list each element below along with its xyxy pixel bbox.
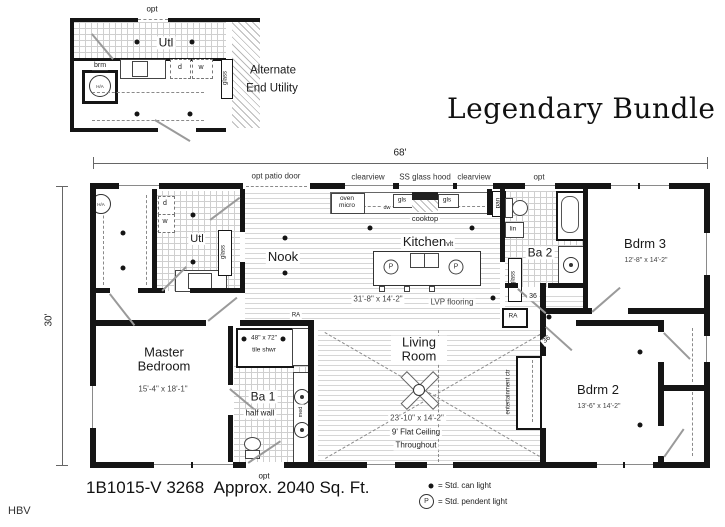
entertainment-center — [516, 356, 542, 430]
linen-label: lin — [510, 225, 517, 232]
opt-patio-door-label: opt patio door — [252, 173, 301, 182]
bdrm3-label: Bdrm 3 — [624, 237, 666, 251]
range-hood — [412, 192, 438, 200]
great-area-dim: 31'-8" x 14'-2" — [351, 296, 404, 305]
can-light — [283, 271, 288, 276]
floor-plan-sheet: Legendary Bundle H/A opt — [0, 0, 725, 527]
utility-glass-label: glass — [221, 245, 228, 259]
master-dim: 15'-4" x 18'-1" — [138, 386, 187, 395]
inset-utl-label: Utl — [157, 36, 176, 49]
living-label: Living Room — [391, 336, 447, 365]
inset-opt-door — [138, 19, 168, 20]
can-light — [470, 226, 475, 231]
can-light — [188, 112, 193, 117]
island-sink-left — [410, 253, 425, 268]
nook-label: Nook — [266, 250, 300, 264]
ss-glass-hood-label: SS glass hood — [399, 174, 451, 183]
bdrm3-door — [592, 287, 621, 312]
pendant-light: P — [384, 260, 399, 275]
shower-type-label: tile shwr — [250, 346, 278, 353]
depth-dimension-line — [62, 186, 63, 466]
closet-top-door — [663, 332, 690, 359]
pendant-light: P — [449, 260, 464, 275]
cooktop-label: cooktop — [410, 215, 440, 223]
width-dimension: 68' — [391, 148, 408, 159]
exterior-wall-right — [704, 183, 710, 468]
ba2-toilet — [512, 200, 528, 216]
sqft: Approx. 2040 Sq. Ft. — [214, 478, 370, 497]
ra-left-label: RA — [290, 313, 302, 320]
can-light-icon — [429, 484, 434, 489]
pantry-label: pan — [494, 198, 501, 209]
window-bdrm2 — [596, 462, 654, 468]
inset-glass-label: glass — [223, 71, 230, 85]
legend-pendant-label: = Std. pendent light — [438, 497, 507, 506]
kitchen-glass-label: glass — [511, 271, 518, 285]
ba1-label: Ba 1 — [249, 390, 278, 403]
bdrm2-dim: 13'-6" x 14'-2" — [577, 403, 620, 411]
can-light — [638, 350, 643, 355]
medicine-cabinet-label: med — [298, 405, 304, 420]
can-light — [368, 226, 373, 231]
can-light — [281, 337, 286, 342]
can-light — [191, 213, 196, 218]
utility-label: Utl — [188, 233, 205, 245]
inset-caption-line2: End Utility — [246, 83, 298, 96]
window-living-2 — [426, 462, 454, 468]
ba1-toilet — [244, 437, 261, 451]
half-wall-label: half wall — [244, 410, 277, 419]
entertainment-ctr-label: entertainment ctr — [506, 369, 513, 414]
bdrm3-dim: 12'-8" x 14'-2" — [624, 257, 667, 265]
model-number: 1B1015-V 3268 — [86, 478, 204, 497]
can-light — [121, 266, 126, 271]
inset-brm-label: brm — [92, 62, 108, 70]
can-light — [135, 112, 140, 117]
can-light — [190, 40, 195, 45]
can-light — [283, 236, 288, 241]
kitchen-label: Kitchenvlt — [401, 235, 455, 249]
opt-rear-door — [246, 462, 284, 468]
window-clearview-left — [344, 183, 394, 189]
window-closet-side — [704, 335, 710, 363]
can-light — [191, 260, 196, 265]
ba2-door-width: 36 — [527, 293, 539, 301]
ba2-sink — [563, 257, 579, 273]
page-title: Legendary Bundle — [447, 92, 716, 125]
hall-opening-door — [208, 297, 238, 321]
can-light — [547, 315, 552, 320]
window-bdrm3 — [610, 183, 670, 189]
can-light — [135, 40, 140, 45]
shower-size-label: 48" x 72" — [249, 334, 279, 341]
inset-water-heater: H/A — [89, 75, 111, 97]
oven-micro-label: oven micro — [333, 195, 361, 209]
ba2-label: Ba 2 — [526, 246, 555, 259]
ceiling-note-2: Throughout — [394, 442, 439, 451]
window-living-1 — [366, 462, 396, 468]
can-light — [121, 231, 126, 236]
living-dim: 23'-10" x 14'-2" — [388, 415, 446, 424]
inset-caption-line1: Alternate — [250, 65, 296, 78]
opt-patio-door — [246, 186, 307, 187]
window-master-side — [90, 385, 96, 429]
window-opt-ba2 — [524, 183, 556, 189]
model-line: 1B1015-V 3268 Approx. 2040 Sq. Ft. — [86, 478, 370, 498]
plan-code: HBV — [8, 505, 31, 517]
window-bdrm3-side — [704, 232, 710, 276]
clearview-right-label: clearview — [457, 174, 490, 183]
width-dimension-line — [93, 163, 708, 164]
cooktop — [412, 200, 438, 212]
can-light — [242, 337, 247, 342]
lvp-flooring-label: LVP flooring — [429, 299, 476, 308]
inset-door-leaf — [155, 119, 191, 141]
depth-dimension: 30' — [44, 311, 55, 328]
clearview-left-label: clearview — [351, 174, 384, 183]
can-light — [491, 296, 496, 301]
master-label: Master Bedroom — [122, 346, 206, 375]
ra-right-label: RA — [508, 312, 517, 319]
legend-can-label: = Std. can light — [438, 481, 491, 490]
island-sink-right — [424, 253, 439, 268]
closet-bottom-door — [663, 428, 684, 457]
window-hood-glass — [398, 183, 454, 189]
inset-opt-label: opt — [146, 6, 157, 15]
opt-window-label: opt — [533, 174, 544, 183]
bdrm2-label: Bdrm 2 — [577, 383, 619, 397]
ceiling-fan-hub — [413, 384, 425, 396]
window-master — [153, 462, 234, 468]
can-light — [638, 423, 643, 428]
pendant-light-icon: P — [419, 494, 434, 509]
ceiling-note-1: 9' Flat Ceiling — [390, 429, 442, 438]
dishwasher-label: dw — [381, 205, 392, 211]
